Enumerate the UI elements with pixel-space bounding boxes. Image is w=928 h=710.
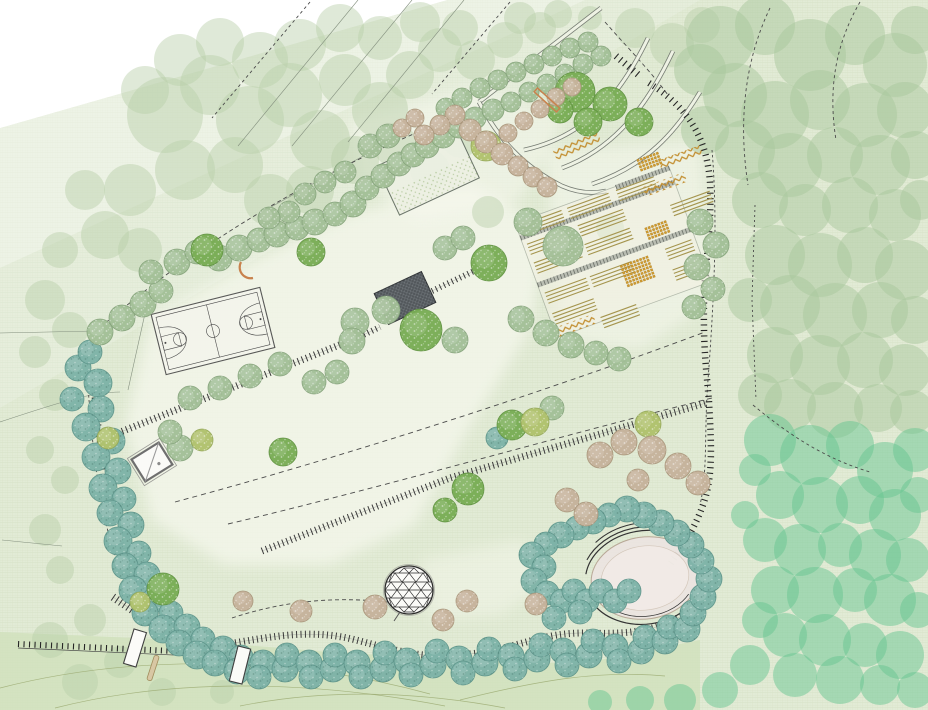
masterplan-page (0, 0, 928, 710)
masterplan-drawing (0, 0, 928, 710)
